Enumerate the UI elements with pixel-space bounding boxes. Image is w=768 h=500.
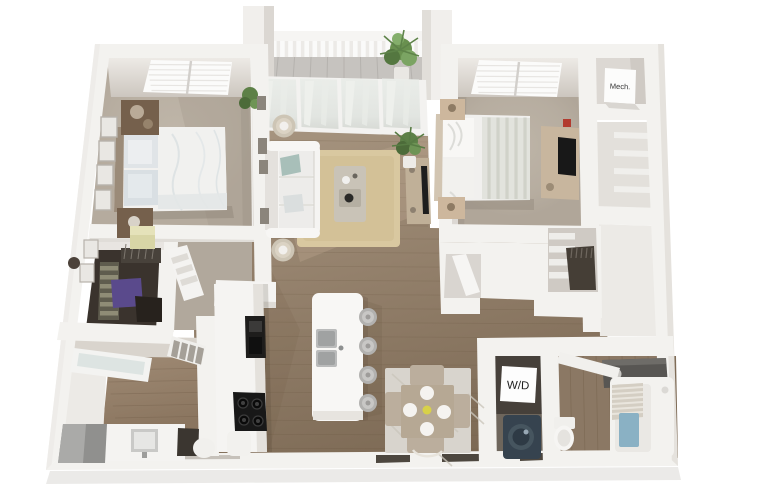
svg-text:Mech.: Mech. <box>610 82 631 92</box>
svg-text:W/D: W/D <box>507 380 530 393</box>
